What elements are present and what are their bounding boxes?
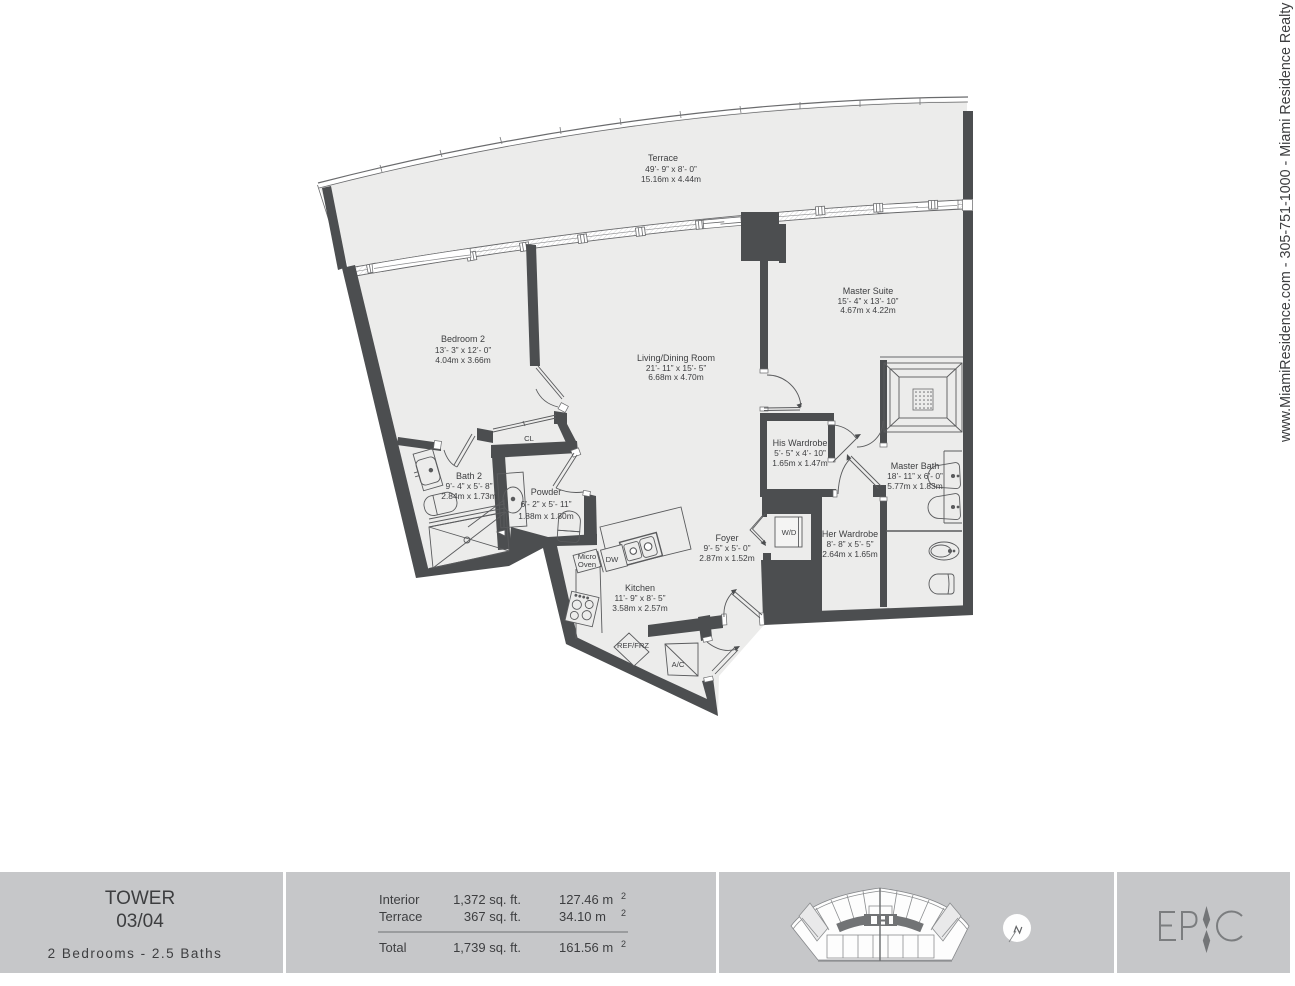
svg-text:8’- 8” x 5’- 5”: 8’- 8” x 5’- 5” [826, 539, 873, 549]
svg-text:5.77m x 1.83m: 5.77m x 1.83m [887, 481, 942, 491]
svg-text:03/04: 03/04 [116, 911, 164, 932]
svg-text:REF/FRZ: REF/FRZ [617, 641, 649, 650]
svg-text:1,739 sq. ft.: 1,739 sq. ft. [453, 940, 521, 955]
svg-text:Powder: Powder [531, 487, 562, 497]
svg-text:2.87m x 1.52m: 2.87m x 1.52m [699, 553, 754, 563]
svg-text:13’- 3” x 12’- 0”: 13’- 3” x 12’- 0” [435, 345, 492, 355]
svg-text:Master Bath: Master Bath [891, 461, 940, 471]
svg-text:4.67m x 4.22m: 4.67m x 4.22m [840, 305, 895, 315]
svg-text:9’- 5” x 5’- 0”: 9’- 5” x 5’- 0” [703, 543, 750, 553]
svg-text:6’- 2” x 5’- 11”: 6’- 2” x 5’- 11” [520, 499, 571, 509]
svg-text:161.56 m: 161.56 m [559, 940, 613, 955]
svg-text:18’- 11” x 6’- 0”: 18’- 11” x 6’- 0” [887, 471, 943, 481]
svg-text:11’- 9” x 8’- 5”: 11’- 9” x 8’- 5” [614, 593, 665, 603]
svg-text:TOWER: TOWER [105, 888, 175, 909]
svg-text:Her Wardrobe: Her Wardrobe [822, 529, 878, 539]
svg-text:A/C: A/C [672, 660, 685, 669]
svg-text:Bedroom 2: Bedroom 2 [441, 334, 485, 344]
svg-text:2: 2 [621, 908, 626, 918]
svg-text:Interior: Interior [379, 892, 420, 907]
svg-text:5’- 5” x 4’- 10”: 5’- 5” x 4’- 10” [774, 448, 826, 458]
svg-text:www.MiamiResidence.com - 305: www.MiamiResidence.com - 305-751-1000 - … [1278, 2, 1294, 443]
svg-text:1.65m x 1.47m: 1.65m x 1.47m [772, 458, 827, 468]
svg-text:Foyer: Foyer [715, 533, 738, 543]
svg-text:4.04m x 3.66m: 4.04m x 3.66m [435, 355, 490, 365]
svg-text:1,372 sq. ft.: 1,372 sq. ft. [453, 892, 521, 907]
svg-text:15.16m x 4.44m: 15.16m x 4.44m [641, 174, 701, 184]
svg-text:2: 2 [621, 939, 626, 949]
svg-text:127.46 m: 127.46 m [559, 892, 613, 907]
svg-text:DW: DW [606, 555, 619, 564]
svg-text:2 Bedrooms - 2.5 Baths: 2 Bedrooms - 2.5 Baths [48, 946, 223, 961]
svg-text:1.88m x 1.80m: 1.88m x 1.80m [518, 511, 573, 521]
svg-text:Terrace: Terrace [379, 909, 422, 924]
svg-text:CL: CL [524, 434, 534, 443]
svg-text:9’- 4” x 5’- 8”: 9’- 4” x 5’- 8” [445, 481, 492, 491]
svg-text:2: 2 [621, 891, 626, 901]
svg-text:2.84m x 1.73m: 2.84m x 1.73m [441, 491, 496, 501]
svg-text:6.68m x 4.70m: 6.68m x 4.70m [648, 372, 703, 382]
svg-text:Master Suite: Master Suite [843, 286, 894, 296]
svg-text:His Wardrobe: His Wardrobe [773, 438, 828, 448]
svg-text:Terrace: Terrace [648, 153, 678, 163]
svg-text:367 sq. ft.: 367 sq. ft. [464, 909, 521, 924]
svg-text:Living/Dining Room: Living/Dining Room [637, 353, 715, 363]
svg-text:Oven: Oven [578, 560, 596, 569]
svg-text:2.64m x 1.65m: 2.64m x 1.65m [822, 549, 877, 559]
svg-text:Bath 2: Bath 2 [456, 471, 482, 481]
svg-text:49’- 9” x 8’- 0”: 49’- 9” x 8’- 0” [645, 164, 697, 174]
svg-text:34.10 m: 34.10 m [559, 909, 606, 924]
svg-text:Total: Total [379, 940, 407, 955]
svg-text:3.58m x 2.57m: 3.58m x 2.57m [612, 603, 667, 613]
svg-text:Kitchen: Kitchen [625, 583, 655, 593]
svg-text:W/D: W/D [782, 528, 797, 537]
